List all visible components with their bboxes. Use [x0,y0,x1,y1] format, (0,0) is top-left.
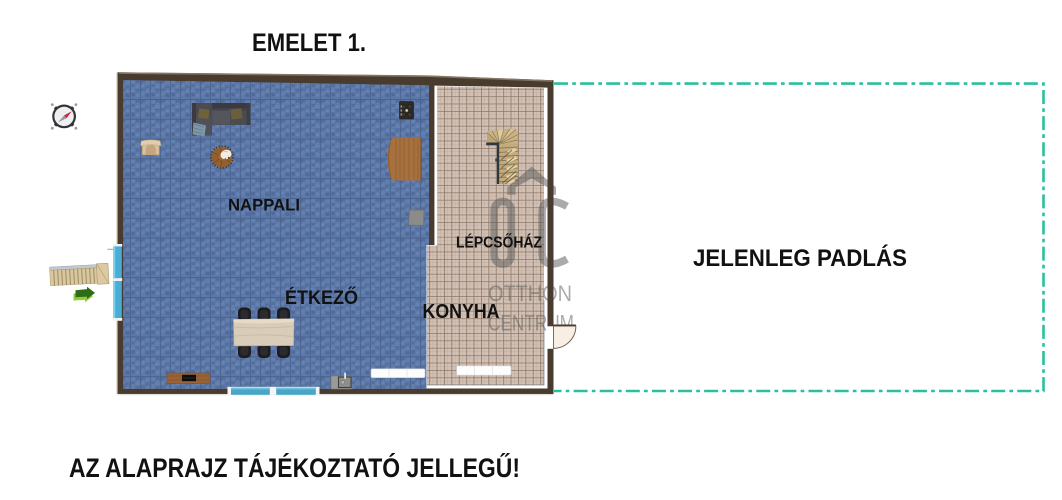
svg-text:KONYHA: KONYHA [423,300,500,323]
svg-text:JELENLEG PADLÁS: JELENLEG PADLÁS [693,244,907,272]
svg-text:LÉPCSŐHÁZ: LÉPCSŐHÁZ [456,234,542,252]
svg-text:ÉTKEZŐ: ÉTKEZŐ [285,286,358,309]
svg-text:EMELET 1.: EMELET 1. [252,29,366,57]
svg-text:NAPPALI: NAPPALI [228,196,300,215]
svg-text:AZ ALAPRAJZ TÁJÉKOZTATÓ JELLEG: AZ ALAPRAJZ TÁJÉKOZTATÓ JELLEGŰ! [69,452,520,483]
svg-text:OTTHON: OTTHON [488,281,572,306]
